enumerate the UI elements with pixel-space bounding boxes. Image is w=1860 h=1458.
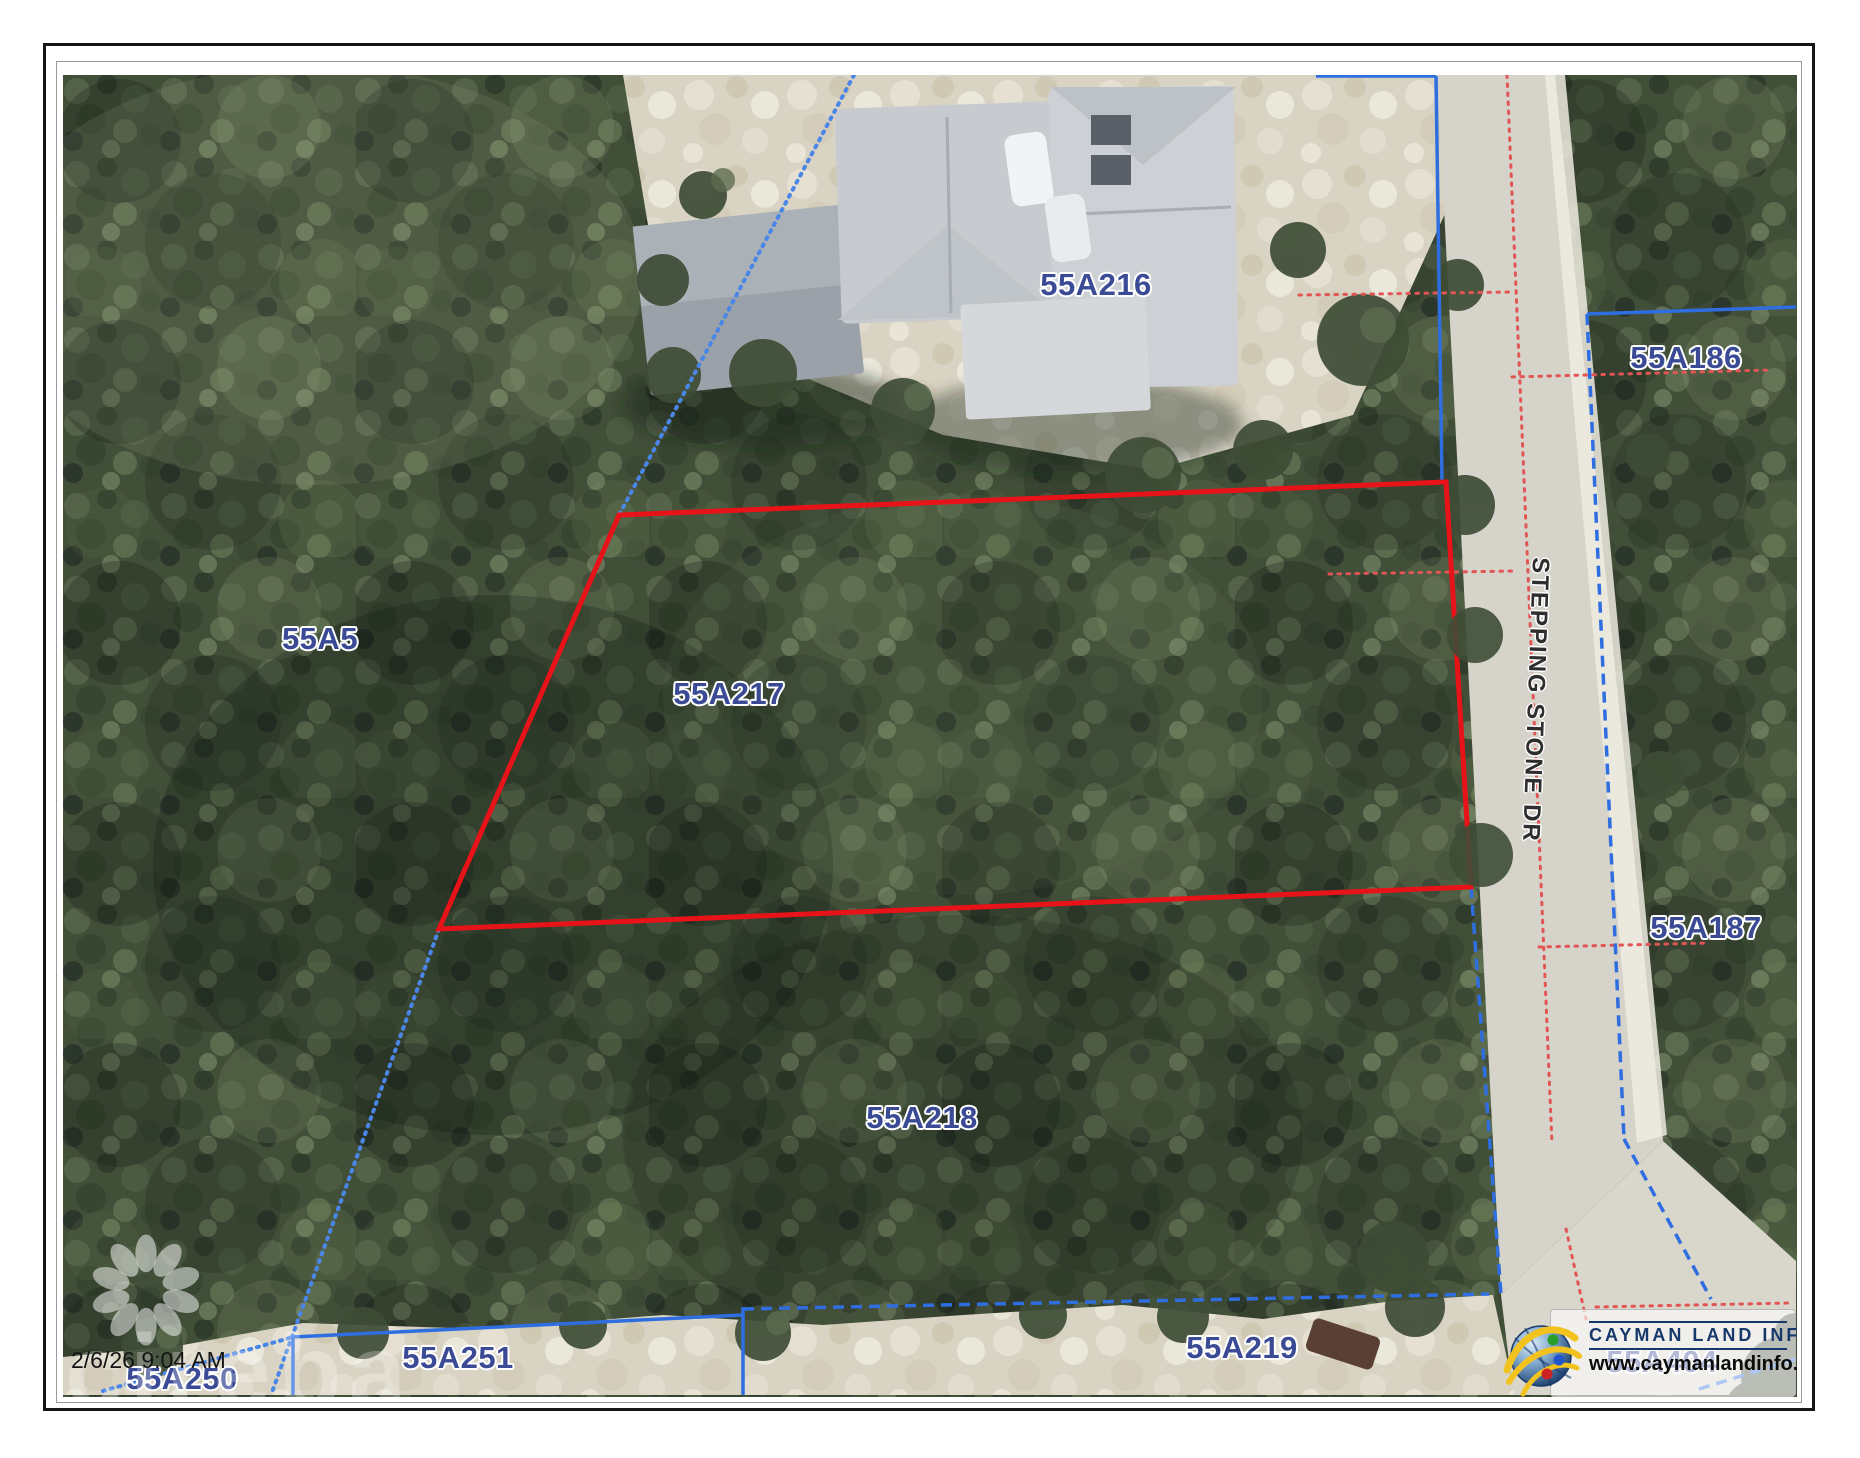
cayman-land-info-logo-box: CAYMAN LAND INFO www.caymanlandinfo.ky: [1550, 1309, 1796, 1397]
globe-icon: [1495, 1308, 1587, 1397]
page: 55A21655A555A21755A21855A21955A25055A251…: [0, 0, 1860, 1458]
timestamp: 2/6/26 9:04 AM: [71, 1347, 226, 1374]
logo-website: www.caymanlandinfo.ky: [1589, 1353, 1787, 1376]
logo-rule-bottom: [1589, 1348, 1787, 1350]
logo-rule-top: [1589, 1321, 1787, 1323]
aerial-map-canvas: 55A21655A555A21755A21855A21955A25055A251…: [63, 75, 1797, 1397]
logo-title: CAYMAN LAND INFO: [1589, 1325, 1787, 1346]
